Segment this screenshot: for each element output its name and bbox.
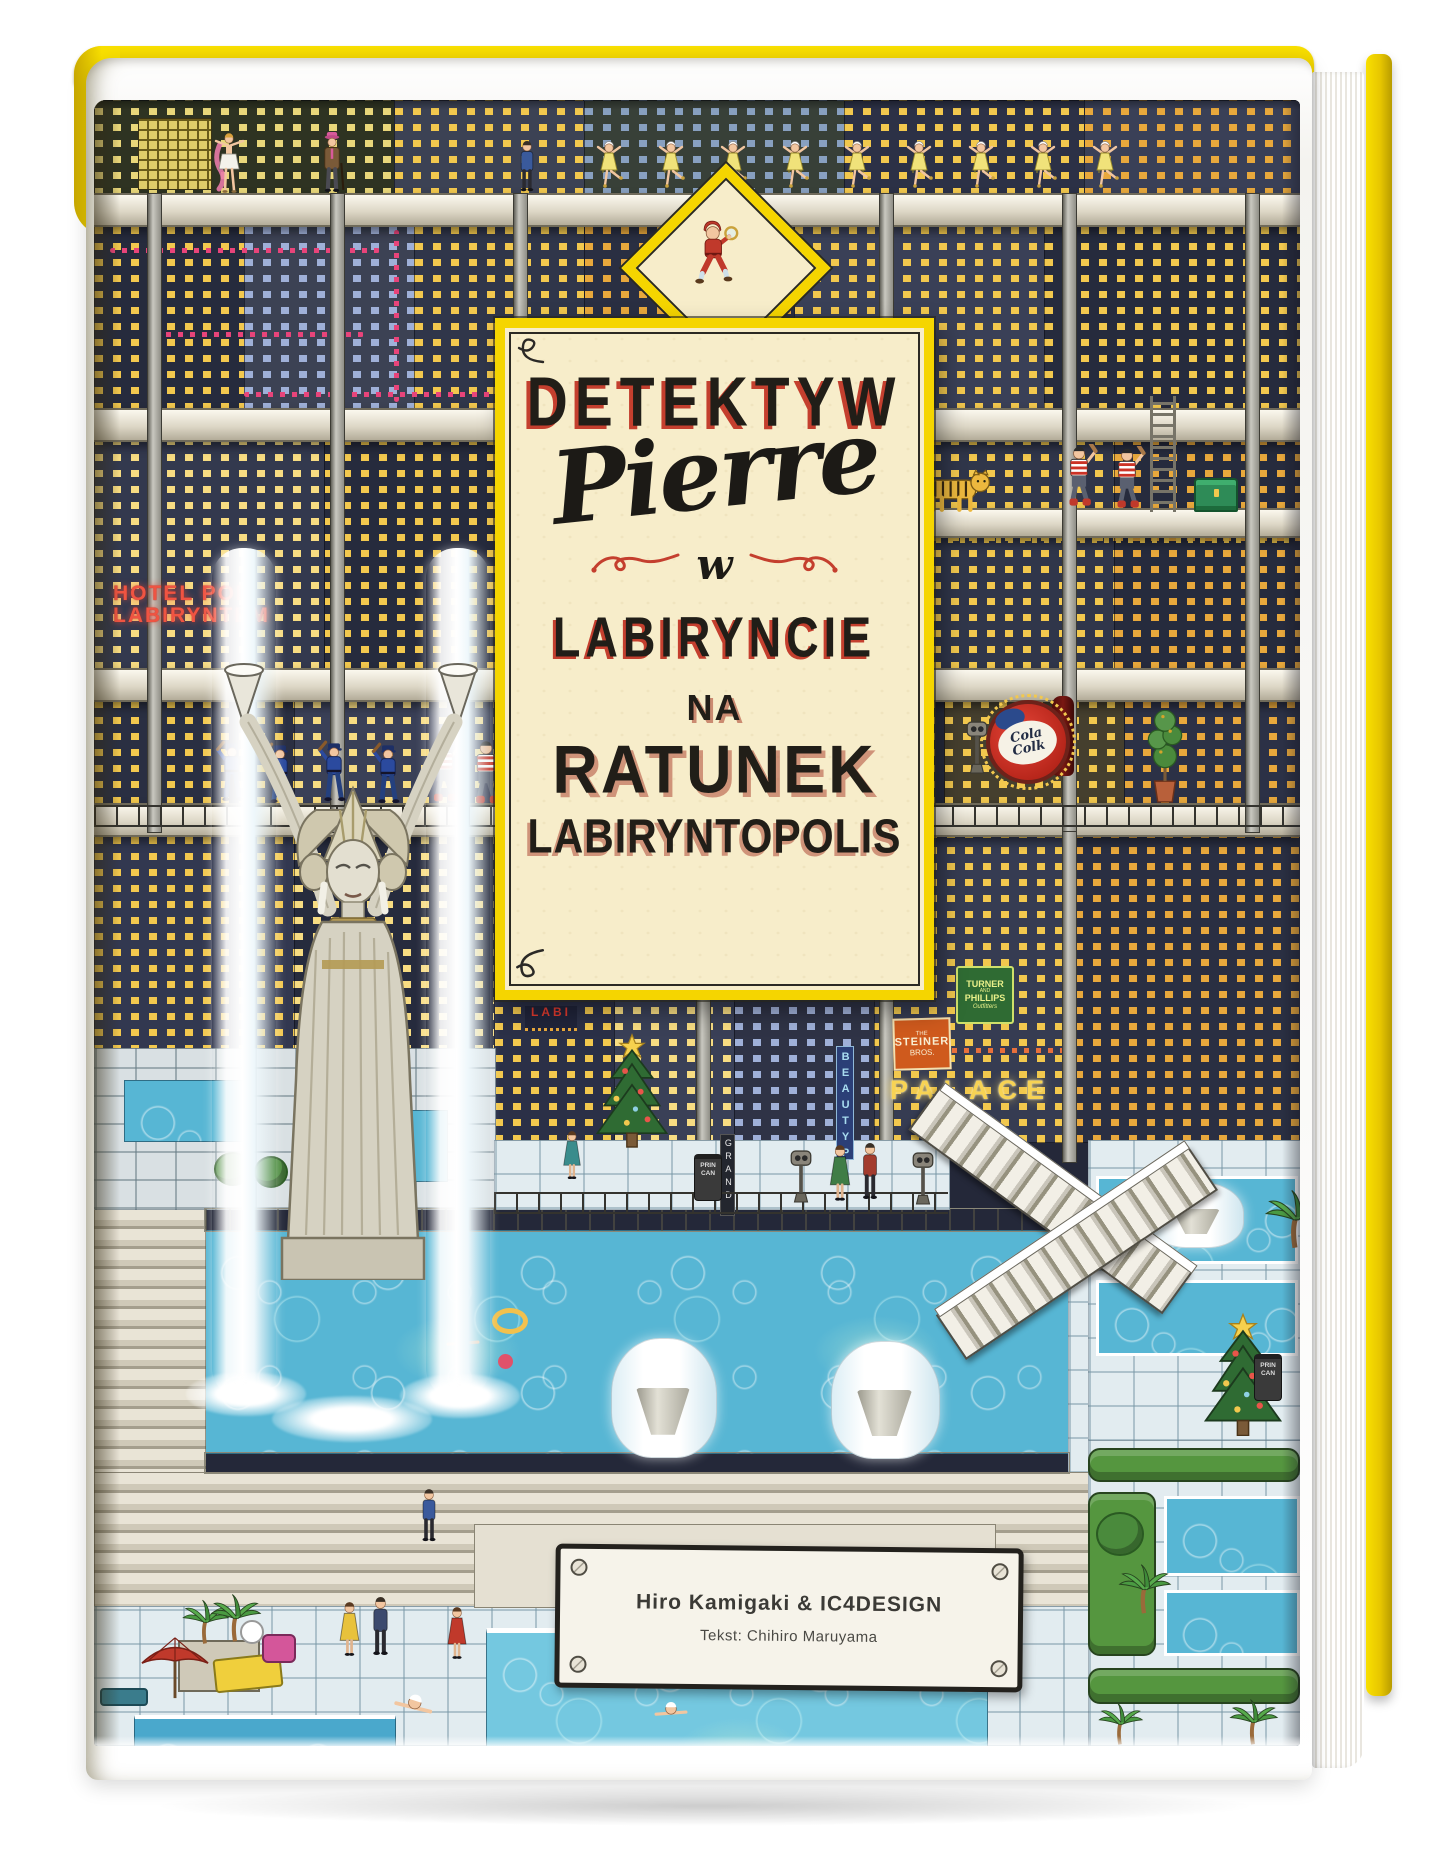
fountain-pavilion [611, 1338, 715, 1456]
observer-man [856, 1140, 884, 1204]
steiner-bros-sign: THE STEINER BROS. [892, 1017, 951, 1071]
woman-in-yellow-dress [336, 1600, 363, 1660]
pedestrian [514, 140, 540, 194]
cover-illustration: TACOS HOTEL POD LABIRYNTEM Co [94, 100, 1300, 1746]
light-string [900, 538, 1294, 543]
edge-shading [94, 100, 1300, 110]
chorus-dancer [904, 136, 934, 194]
trash-bin: PRINCAN [694, 1154, 722, 1201]
garden-pool [1164, 1496, 1300, 1576]
chorus-dancer [1028, 136, 1058, 194]
turner-phillips-sign: TURNER AND PHILLIPS Outfitters [956, 966, 1014, 1024]
subtitle-ratunek: RATUNEK [552, 731, 876, 809]
side-table [240, 1620, 264, 1644]
topiary-plant [1142, 700, 1188, 804]
palm-tree [1116, 1560, 1172, 1616]
pouf-seat [262, 1634, 296, 1663]
chorus-dancer [780, 136, 810, 194]
chorus-dancer [594, 136, 624, 194]
hedge-row [1088, 1448, 1300, 1482]
swimmer [654, 1700, 688, 1722]
observer-woman [826, 1144, 854, 1204]
viewer-scope [964, 716, 990, 778]
book-front-cover: TACOS HOTEL POD LABIRYNTEM Co [86, 58, 1312, 1780]
thug-illustration [1108, 446, 1146, 510]
back-cover-edge [1366, 54, 1392, 1696]
corner-flourish [513, 334, 547, 368]
viewer-scope [910, 1148, 936, 1208]
pillar [147, 193, 162, 833]
pillar [1062, 831, 1077, 1163]
credits-plaque: Hiro Kamigaki & IC4DESIGN Tekst: Chihiro… [554, 1544, 1023, 1693]
chorus-dancer [966, 136, 996, 194]
statue-of-goddess [204, 660, 504, 1280]
flourish-ornament [747, 551, 839, 579]
pedestrian [560, 1130, 584, 1182]
subtitle-na: NA [687, 687, 743, 729]
viewer-scope [788, 1146, 814, 1206]
cola-clock-sign: Cola Colk [986, 700, 1070, 784]
gentleman-with-cane [316, 132, 348, 194]
pillar [1245, 193, 1260, 833]
title-name: Pierre [546, 405, 882, 539]
text-credit: Tekst: Chihiro Maruyama [700, 1627, 878, 1646]
lattice-tower [138, 118, 212, 190]
trash-bin: PRINCAN [1254, 1354, 1282, 1401]
light-string [394, 230, 399, 402]
boa-dancer [212, 132, 246, 194]
garden-pool [1164, 1590, 1300, 1656]
chorus-dancer [656, 136, 686, 194]
christmas-tree [594, 1006, 670, 1174]
corner-flourish [511, 946, 547, 982]
title-location: LABIRYNCIE [553, 605, 876, 670]
ladder [1150, 396, 1176, 512]
subtitle-labiryntopolis: LABIRYNTOPOLIS [528, 809, 902, 864]
pedestrian [416, 1488, 442, 1544]
thug-illustration [1060, 444, 1098, 508]
palace-sign: PALACE [890, 1076, 1053, 1104]
edge-shading [1282, 100, 1300, 1746]
ledge [894, 508, 1300, 538]
chorus-dancer [842, 136, 872, 194]
spine-shading [94, 100, 120, 1746]
swim-ring [492, 1308, 528, 1334]
book-shadow [150, 1786, 1260, 1826]
edge-shading [94, 1736, 1300, 1746]
fountain-pavilion [831, 1341, 938, 1457]
labi-marquee-sign: LABI [525, 1006, 577, 1031]
man-in-suit [366, 1594, 395, 1660]
building [394, 100, 586, 196]
title-panel: DETEKTYW Pierre w LABIRYNCIE NA RATUNEK … [495, 318, 934, 1000]
chorus-dancer [1090, 136, 1120, 194]
hedge-bush [1096, 1512, 1144, 1556]
title-connector: w [696, 540, 732, 589]
building [1074, 831, 1300, 1143]
pool-ball [498, 1354, 513, 1369]
page-block [1312, 72, 1364, 1768]
building [1044, 223, 1300, 411]
treasure-chest [1194, 478, 1238, 512]
flourish-ornament [590, 551, 682, 579]
beauty-sign: BEAUTYPA [836, 1046, 854, 1160]
building [94, 438, 326, 670]
detective-pierre-figure [692, 218, 740, 292]
authors-credit: Hiro Kamigaki & IC4DESIGN [636, 1590, 942, 1617]
water-splash [272, 1396, 432, 1442]
bather-in-red [444, 1606, 470, 1662]
